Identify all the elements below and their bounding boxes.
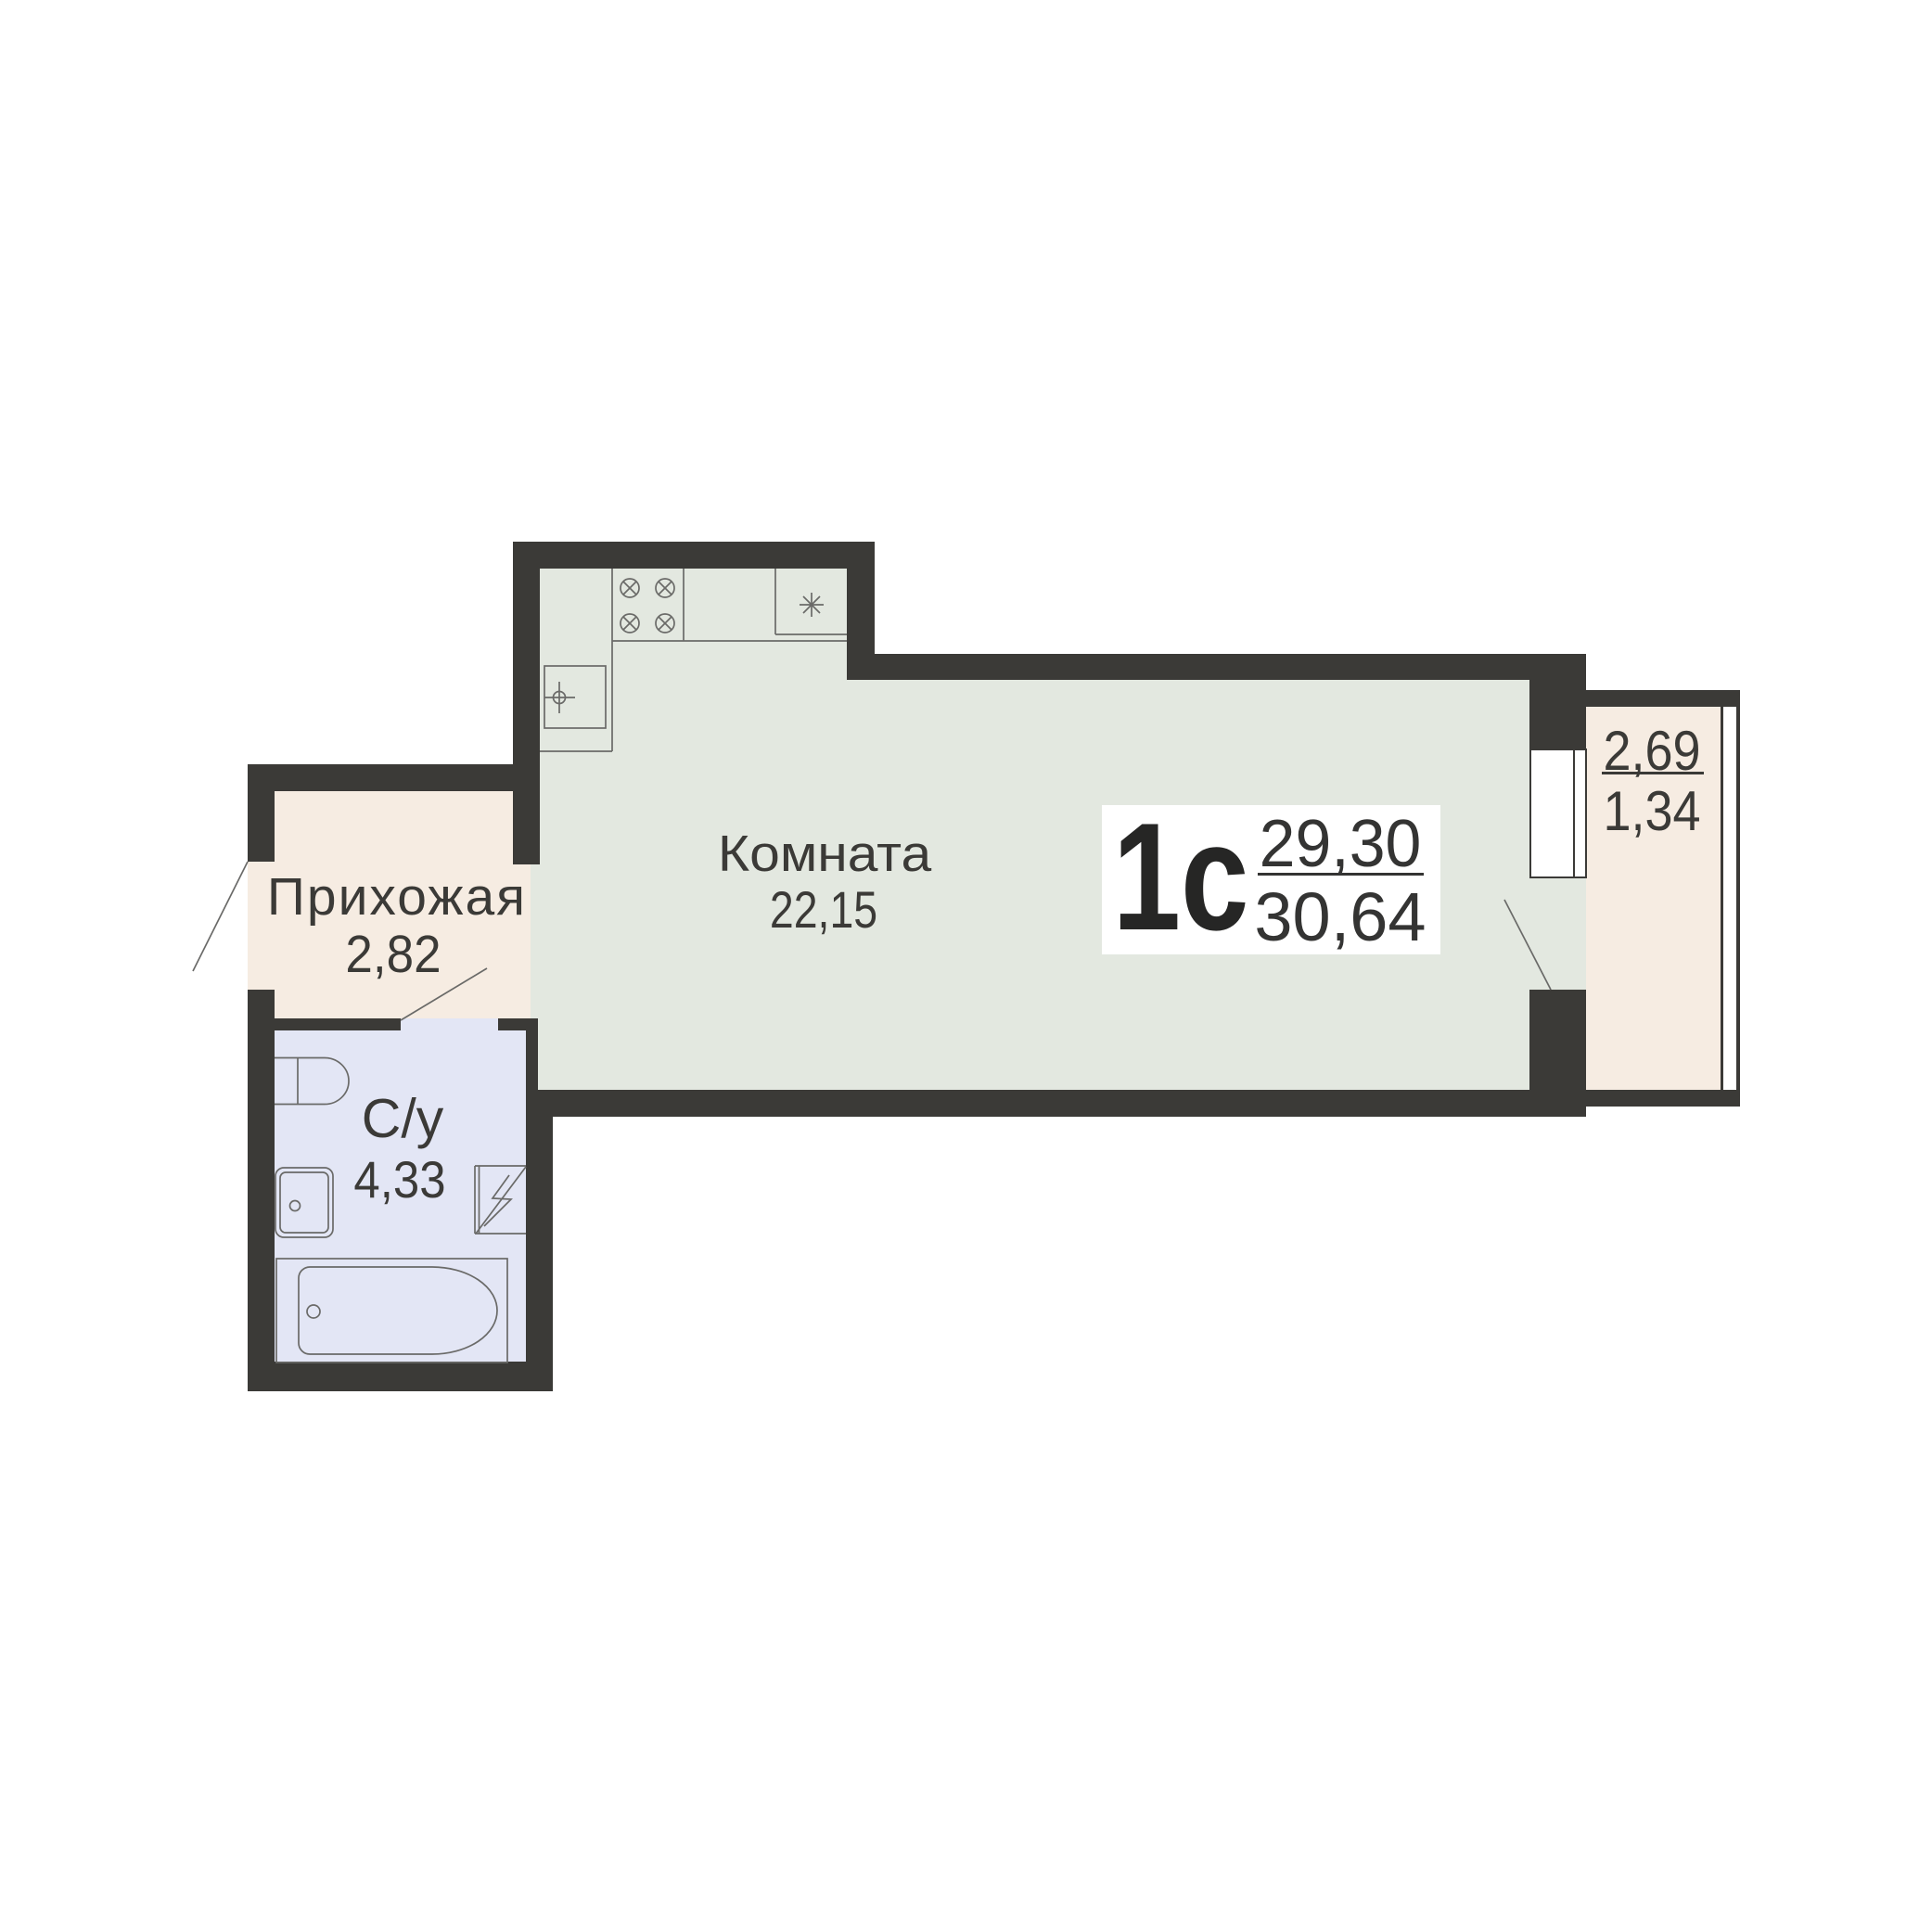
svg-text:4,33: 4,33	[353, 1152, 445, 1209]
svg-text:Комната: Комната	[718, 825, 932, 883]
svg-text:30,64: 30,64	[1254, 878, 1426, 955]
svg-text:1,34: 1,34	[1603, 780, 1700, 842]
svg-text:1с: 1с	[1113, 791, 1249, 962]
svg-text:29,30: 29,30	[1260, 807, 1422, 881]
svg-text:Прихожая: Прихожая	[267, 867, 527, 927]
svg-text:С/у: С/у	[362, 1088, 444, 1149]
svg-text:2,82: 2,82	[345, 924, 441, 983]
svg-text:22,15: 22,15	[770, 880, 877, 939]
